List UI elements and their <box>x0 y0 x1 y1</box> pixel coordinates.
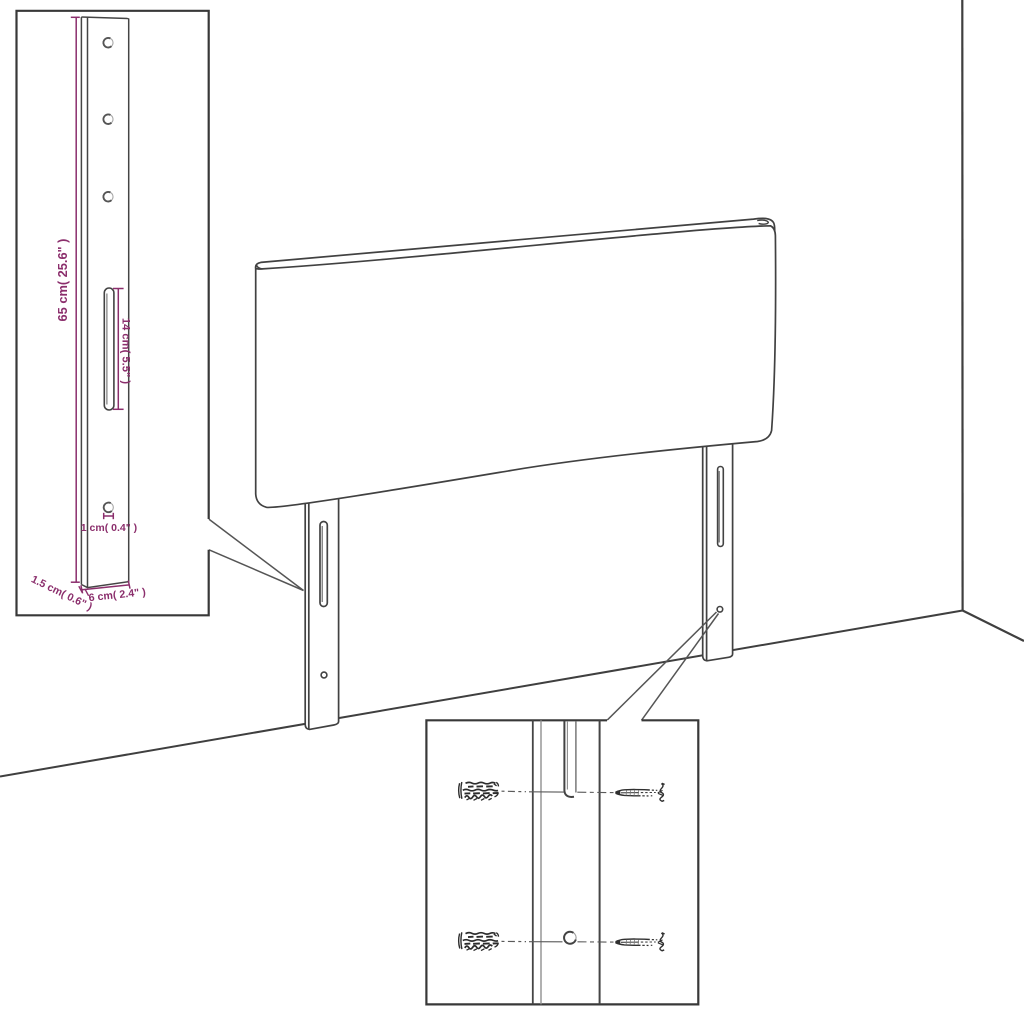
svg-text:14 cm( 5.5" ): 14 cm( 5.5" ) <box>120 318 132 385</box>
svg-text:65 cm( 25.6" ): 65 cm( 25.6" ) <box>55 239 70 322</box>
svg-text:1 cm( 0.4" ): 1 cm( 0.4" ) <box>81 522 137 534</box>
